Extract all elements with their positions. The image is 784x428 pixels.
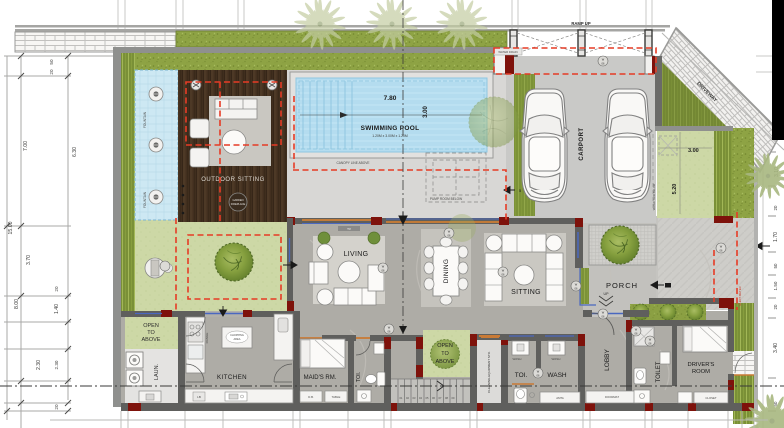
svg-text:1.20M x 3.00M x 1.20M: 1.20M x 3.00M x 1.20M xyxy=(372,134,408,138)
svg-text:WASH: WASH xyxy=(547,372,567,379)
svg-text:PUMP ROOM BELOW: PUMP ROOM BELOW xyxy=(430,197,462,201)
svg-text:TOI.: TOI. xyxy=(356,371,362,382)
svg-text:1.50: 1.50 xyxy=(773,281,778,290)
svg-text:3.40: 3.40 xyxy=(773,343,779,353)
svg-text:MAID'S RM.: MAID'S RM. xyxy=(304,375,337,381)
svg-text:WASH: WASH xyxy=(552,357,561,361)
svg-text:7.00: 7.00 xyxy=(23,141,29,151)
svg-text:TOI.: TOI. xyxy=(515,372,528,379)
svg-text:OPEN: OPEN xyxy=(143,323,159,329)
svg-text:AREA: AREA xyxy=(233,337,240,341)
svg-text:D.B.: D.B. xyxy=(308,395,314,399)
svg-text:TABLE: TABLE xyxy=(332,395,341,399)
svg-text:20: 20 xyxy=(49,69,54,75)
svg-text:RAMP UP: RAMP UP xyxy=(571,21,590,26)
svg-text:OPEN: OPEN xyxy=(437,343,453,349)
svg-text:AMTA: AMTA xyxy=(556,396,564,400)
svg-text:CLEANING EQUIPMENT STO.: CLEANING EQUIPMENT STO. xyxy=(487,351,491,393)
svg-text:DRIVER'S: DRIVER'S xyxy=(688,362,715,368)
svg-text:WATER TANK BELOW: WATER TANK BELOW xyxy=(652,183,656,210)
svg-text:KITCHEN: KITCHEN xyxy=(217,374,247,381)
svg-text:UP: UP xyxy=(604,292,610,296)
svg-text:LOBBY: LOBBY xyxy=(604,349,611,371)
svg-text:15.00: 15.00 xyxy=(8,221,14,234)
svg-text:LB: LB xyxy=(197,395,201,399)
svg-text:5.20: 5.20 xyxy=(672,184,678,195)
svg-text:ELECT.METER: ELECT.METER xyxy=(738,286,742,305)
svg-text:2.30: 2.30 xyxy=(36,360,42,370)
svg-text:TOILET: TOILET xyxy=(656,361,662,382)
svg-text:TV: TV xyxy=(347,227,351,231)
svg-text:SITTING: SITTING xyxy=(511,289,541,296)
svg-text:2.30: 2.30 xyxy=(54,360,59,369)
svg-text:CHOPPING: CHOPPING xyxy=(230,333,244,337)
svg-text:ABOVE: ABOVE xyxy=(142,337,161,343)
svg-text:TO: TO xyxy=(147,330,155,336)
svg-text:OUTDOOR SITTING: OUTDOOR SITTING xyxy=(201,177,265,183)
svg-text:FOUNTAIN: FOUNTAIN xyxy=(143,111,147,128)
svg-text:1.70: 1.70 xyxy=(773,232,779,242)
svg-text:WATER DRAIN: WATER DRAIN xyxy=(498,50,517,54)
svg-text:20: 20 xyxy=(773,304,778,309)
svg-text:LIVING: LIVING xyxy=(344,251,369,258)
svg-text:DINING: DINING xyxy=(443,259,450,284)
svg-text:20: 20 xyxy=(54,404,59,410)
svg-text:3.70: 3.70 xyxy=(26,255,32,265)
svg-text:SWIMMING POOL: SWIMMING POOL xyxy=(361,125,420,132)
svg-text:LAUN.: LAUN. xyxy=(154,363,160,380)
svg-text:CANOPY LINE ABOVE: CANOPY LINE ABOVE xyxy=(336,161,369,165)
svg-text:CLOSET: CLOSET xyxy=(705,396,716,400)
svg-text:50: 50 xyxy=(49,59,54,65)
svg-text:PORCH: PORCH xyxy=(606,281,638,290)
svg-text:DOORMAT: DOORMAT xyxy=(605,395,619,399)
svg-text:7.80: 7.80 xyxy=(384,95,397,102)
svg-text:TO: TO xyxy=(441,351,449,357)
svg-text:ROOM: ROOM xyxy=(692,369,710,375)
svg-text:ABOVE: ABOVE xyxy=(436,359,455,365)
svg-text:20: 20 xyxy=(54,286,59,292)
svg-text:WASH: WASH xyxy=(513,357,522,361)
svg-text:20: 20 xyxy=(773,205,778,210)
svg-text:RANGE: RANGE xyxy=(205,333,209,344)
svg-text:3.00: 3.00 xyxy=(688,148,699,154)
svg-text:GARDEN: GARDEN xyxy=(232,198,243,202)
svg-text:FOUNTAIN: FOUNTAIN xyxy=(143,191,147,208)
svg-text:1.40: 1.40 xyxy=(54,304,60,314)
svg-text:8.00: 8.00 xyxy=(14,299,20,309)
svg-text:50: 50 xyxy=(773,263,778,268)
svg-text:3.00: 3.00 xyxy=(423,106,429,118)
svg-text:CARPORT: CARPORT xyxy=(579,127,585,160)
svg-text:6.30: 6.30 xyxy=(72,147,78,157)
svg-text:FIREPLACE: FIREPLACE xyxy=(231,202,246,206)
